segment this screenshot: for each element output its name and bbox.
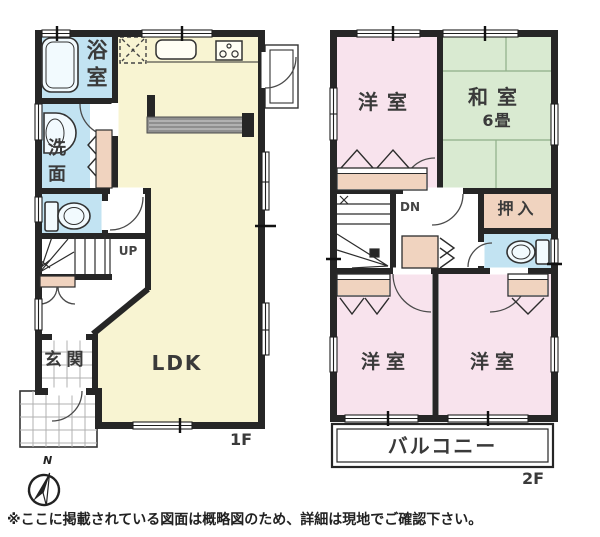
stairs-dn-label: DN <box>394 201 426 213</box>
ldk-door-opening <box>110 188 143 195</box>
oshiire-label: 押入 <box>484 201 551 217</box>
kitchen-sink-icon <box>156 40 196 59</box>
toilet-icon-2f <box>507 240 549 264</box>
western-nw-label: 洋室 <box>350 92 424 112</box>
japanese-door-arc <box>432 194 463 225</box>
toilet-icon-1f <box>45 202 90 231</box>
ldk-label: LDK <box>137 353 217 373</box>
japanese-room-size-label: 6畳 <box>457 113 537 129</box>
shoe-cabinet <box>40 276 75 304</box>
entrance-label: 玄関 <box>38 352 95 369</box>
compass-north-icon <box>25 468 64 509</box>
western-sw-label: 洋室 <box>348 353 424 372</box>
hall-closet <box>402 236 454 268</box>
bathtub-icon <box>42 38 78 92</box>
disclaimer-footnote: ※ここに掲載されている図面は概略図のため、詳細は現地でご確認下さい。 <box>7 513 482 527</box>
stove-icon <box>216 41 242 60</box>
washroom-label: 洗面 <box>46 138 64 190</box>
entrance-porch <box>20 391 97 447</box>
stairs-1f <box>40 236 110 274</box>
bathroom-label: 浴室 <box>85 39 106 93</box>
washroom-shelf <box>96 130 112 188</box>
ldk-door-arc <box>110 197 143 230</box>
kitchen-back-door-steps <box>265 45 298 108</box>
floor-1f-label: 1F <box>222 432 260 448</box>
toilet-door-opening-1f <box>102 201 109 230</box>
entrance-door-opening <box>48 388 86 396</box>
hall-opening <box>52 334 86 341</box>
back-door-opening <box>262 52 269 88</box>
balcony-label: バルコニー <box>337 436 548 456</box>
western-se-label: 洋室 <box>457 353 533 372</box>
stairs-2f <box>337 196 390 268</box>
floor-1f-plan <box>20 26 298 447</box>
compass-north-label: N <box>43 455 52 466</box>
japanese-door-opening <box>432 188 463 195</box>
floorplan-page: 浴室 洗面 LDK 玄関 UP 1F 洋室 和室 6畳 押入 DN 洋室 洋室 … <box>0 0 600 537</box>
floor-2f-label: 2F <box>514 471 552 487</box>
japanese-room-label: 和室 <box>457 87 537 107</box>
stairs-up-label: UP <box>108 245 148 257</box>
